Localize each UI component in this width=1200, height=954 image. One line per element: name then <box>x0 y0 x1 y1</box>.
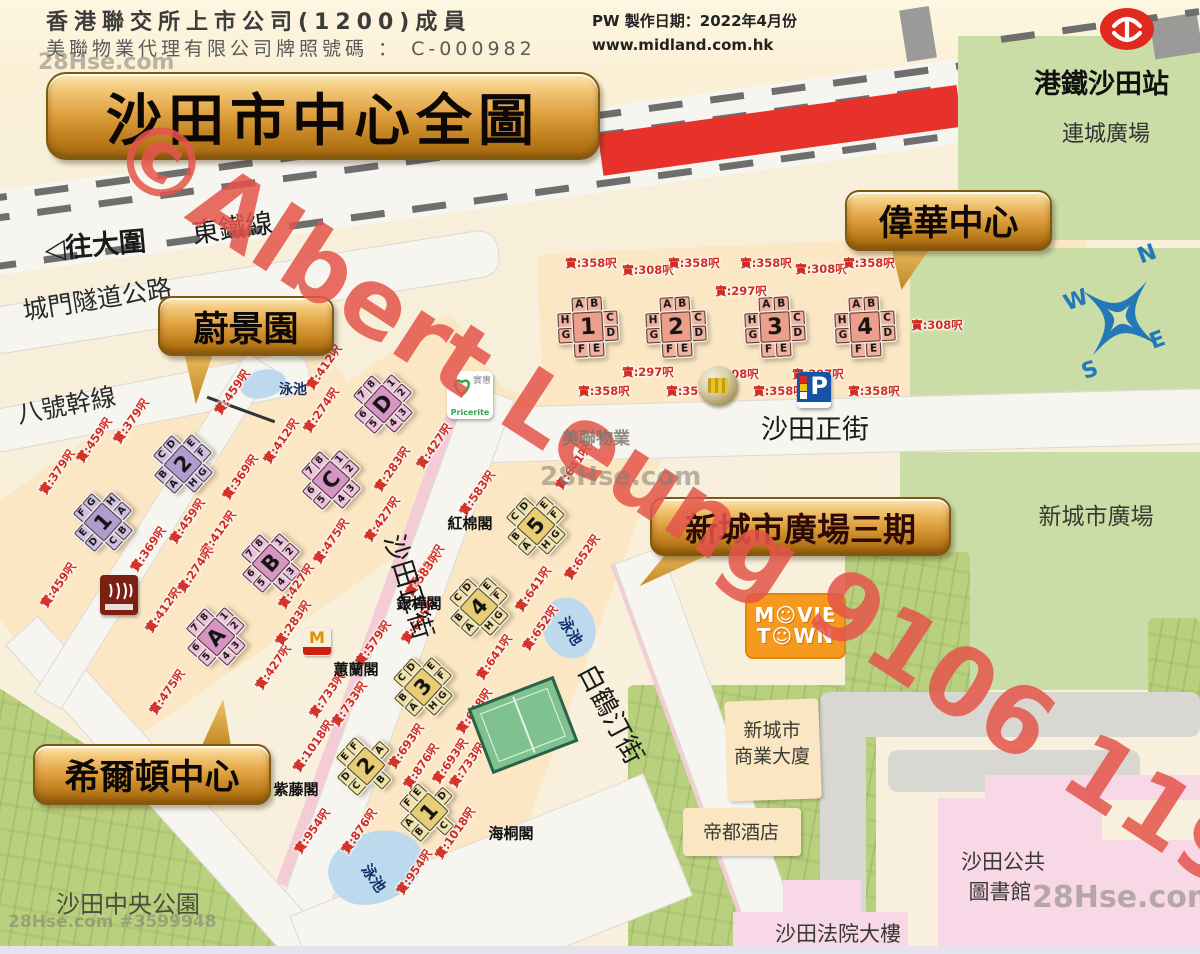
building-core-wai-wah-4: 4 <box>849 311 881 343</box>
unit-tile-wai-wah-2-A: A <box>659 297 675 313</box>
area-label: 實:358呎 <box>848 383 900 399</box>
pricerite-cn-label: 實惠 <box>473 373 491 386</box>
label-library-line2: 圖書館 <box>969 876 1032 906</box>
label-to-tai-wai: ◁往大圍 <box>43 219 148 267</box>
unit-tile-wai-wah-4-F: F <box>851 342 867 358</box>
movie-town-line1: M☺VIE <box>754 605 836 626</box>
restaurant-logo-icon <box>100 575 138 615</box>
label-commercial-bldg-line2: 商業大廈 <box>734 742 810 769</box>
unit-tile-wai-wah-4-E: E <box>866 341 882 357</box>
banner-wai-wah-centre: 偉華中心 <box>845 190 1052 251</box>
label-commercial-bldg-line1: 新城市 <box>743 716 800 743</box>
mcdonalds-icon: M <box>303 628 331 656</box>
market-shopfront <box>708 378 728 393</box>
bottom-edge-strip <box>0 946 1200 954</box>
building-wai-wah-1: ABFEHGCD1 <box>556 295 619 358</box>
watermark-28hse-id: 28Hse.com #3599948 <box>8 912 216 932</box>
platform-block-1 <box>899 6 937 62</box>
unit-tile-wai-wah-2-G: G <box>646 328 662 344</box>
unit-tile-wai-wah-2-D: D <box>691 325 707 341</box>
unit-tile-wai-wah-4-B: B <box>863 296 879 312</box>
unit-tile-wai-wah-1-E: E <box>589 341 605 357</box>
unit-tile-wai-wah-3-C: C <box>789 310 805 326</box>
area-label: 實:297呎 <box>622 364 674 380</box>
label-tower-wai-lan: 蕙蘭閣 <box>333 659 378 680</box>
label-library-line1: 沙田公共 <box>961 846 1045 876</box>
banner-wai-king-garden: 蔚景園 <box>158 296 334 356</box>
station-name: 港鐵沙田站 <box>1034 62 1169 101</box>
unit-tile-wai-wah-4-A: A <box>848 297 864 313</box>
unit-tile-wai-wah-3-E: E <box>776 341 792 357</box>
mcdonalds-m: M <box>309 628 325 647</box>
map-title-banner: 沙田市中心全圖 <box>46 72 600 160</box>
unit-tile-wai-wah-3-B: B <box>773 296 789 312</box>
label-law-courts: 沙田法院大樓 <box>775 918 901 948</box>
area-label: 實:308呎 <box>795 261 847 277</box>
unit-tile-wai-wah-4-D: D <box>880 325 896 341</box>
green-movietown-1 <box>845 552 970 702</box>
parking-strip <box>797 402 831 408</box>
banner-hilton-plaza: 希爾頓中心 <box>33 744 271 805</box>
area-label: 實:308呎 <box>911 317 963 333</box>
unit-tile-wai-wah-1-F: F <box>574 342 590 358</box>
citylink-plaza-label: 連城廣場 <box>1062 116 1150 148</box>
label-pool-label-1: 泳池 <box>279 379 307 399</box>
area-label: 實:308呎 <box>622 262 674 278</box>
watermark-28hse-bottomright: 28Hse.com <box>1032 880 1200 915</box>
parking-p-label: P <box>810 372 828 400</box>
building-wai-wah-2: ABFEHGCD2 <box>644 295 707 358</box>
building-core-wai-wah-3: 3 <box>759 311 791 343</box>
label-tower-hoi-tung: 海桐閣 <box>488 823 533 844</box>
building-law-courts-2 <box>783 880 861 912</box>
area-label: 實:358呎 <box>565 255 617 271</box>
unit-tile-wai-wah-3-G: G <box>745 328 761 344</box>
movie-town-line2: T☺WN <box>757 626 834 647</box>
building-core-wai-wah-2: 2 <box>660 311 692 343</box>
unit-tile-wai-wah-3-F: F <box>761 342 777 358</box>
parking-color-yellow <box>800 384 807 391</box>
watermark-28hse-topleft: 28Hse.com <box>38 50 174 75</box>
unit-tile-wai-wah-2-C: C <box>690 310 706 326</box>
mcdonalds-bar <box>303 647 331 655</box>
unit-tile-wai-wah-1-C: C <box>602 310 618 326</box>
unit-tile-wai-wah-2-H: H <box>645 313 661 329</box>
watermark-28hse-center: 28Hse.com <box>540 462 701 492</box>
market-icon <box>698 366 738 406</box>
unit-tile-wai-wah-3-H: H <box>744 313 760 329</box>
road-library-h <box>822 692 1200 737</box>
unit-tile-wai-wah-1-H: H <box>557 313 573 329</box>
unit-tile-wai-wah-2-F: F <box>662 342 678 358</box>
unit-tile-wai-wah-1-D: D <box>603 325 619 341</box>
mtr-logo-icon <box>1098 6 1156 56</box>
parking-icon: P <box>797 372 831 408</box>
building-core-wai-wah-1: 1 <box>572 311 604 343</box>
label-royal-park-hotel: 帝都酒店 <box>703 818 779 845</box>
building-wai-wah-4: ABFEHGCD4 <box>833 295 896 358</box>
watermark-midland: 美聯物業 <box>562 424 630 449</box>
header-listing-line: 香港聯交所上市公司(1200)成員 <box>46 4 471 36</box>
shatin-town-centre-map: 香港聯交所上市公司(1200)成員 美聯物業代理有限公司牌照號碼 ： C-000… <box>0 0 1200 954</box>
unit-tile-wai-wah-4-G: G <box>835 328 851 344</box>
unit-tile-wai-wah-2-E: E <box>677 341 693 357</box>
header-made-date: PW 製作日期：2022年4月份 <box>592 10 797 31</box>
banner-new-town-plaza-3: 新城市廣場三期 <box>650 497 951 556</box>
pricerite-icon: 實惠 Pricerite <box>447 371 493 419</box>
movie-town-logo: M☺VIE T☺WN <box>745 593 846 659</box>
unit-tile-wai-wah-4-C: C <box>879 310 895 326</box>
label-tower-tsz-tang: 紫藤閣 <box>273 779 318 800</box>
unit-tile-wai-wah-3-A: A <box>758 297 774 313</box>
pointer-hilton <box>196 698 236 750</box>
unit-tile-wai-wah-1-G: G <box>558 328 574 344</box>
area-label: 實:297呎 <box>715 283 767 299</box>
area-label: 實:358呎 <box>843 255 895 271</box>
parking-color-red <box>800 376 807 383</box>
building-wai-wah-3: ABFEHGCD3 <box>743 295 806 358</box>
label-new-town-plaza: 新城市廣場 <box>1039 497 1154 531</box>
label-tower-ngan-wah: 銀樺閣 <box>396 593 441 614</box>
unit-tile-wai-wah-2-B: B <box>674 296 690 312</box>
label-sha-tin-centre-street-h: 沙田正街 <box>761 408 869 447</box>
area-label: 實:358呎 <box>740 255 792 271</box>
header-website: www.midland.com.hk <box>592 36 773 54</box>
unit-tile-wai-wah-1-A: A <box>571 297 587 313</box>
pricerite-label: Pricerite <box>447 408 493 417</box>
label-tower-hung-min: 紅棉閣 <box>447 513 492 534</box>
unit-tile-wai-wah-4-H: H <box>834 313 850 329</box>
parking-color-white <box>800 392 807 399</box>
unit-tile-wai-wah-3-D: D <box>790 325 806 341</box>
building-pink-strip <box>985 775 1200 800</box>
area-label: 實:358呎 <box>578 383 630 399</box>
area-label: 實:358呎 <box>668 255 720 271</box>
unit-tile-wai-wah-1-B: B <box>586 296 602 312</box>
